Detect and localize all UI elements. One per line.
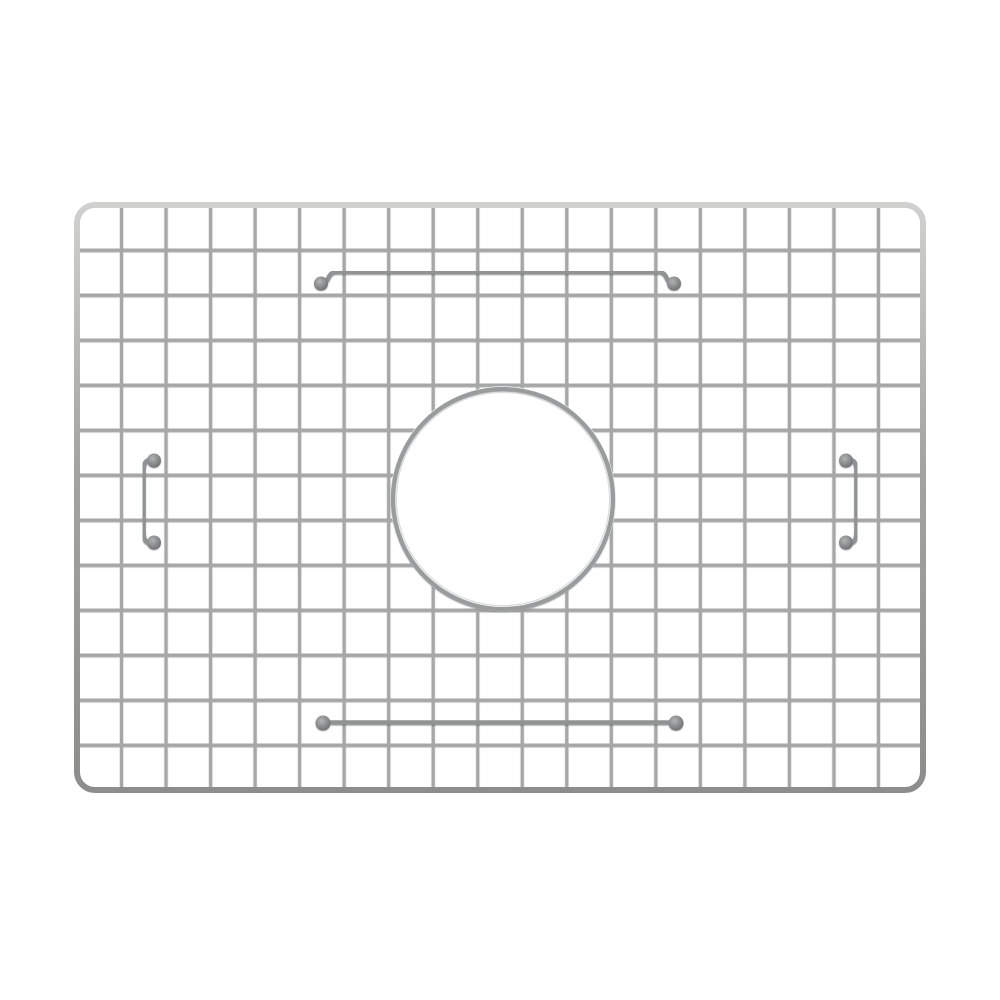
left-handle-top-foot bbox=[147, 454, 161, 468]
sink-grid-photo bbox=[0, 0, 1000, 1000]
left-handle-bottom-foot bbox=[147, 536, 161, 550]
right-handle-top-foot bbox=[839, 454, 853, 468]
product-photo-canvas bbox=[0, 0, 1000, 1000]
bottom-bar-left-foot bbox=[316, 716, 331, 731]
top-bar-right-foot bbox=[667, 277, 681, 291]
bottom-bar-right-foot bbox=[669, 716, 684, 731]
top-bar-left-foot bbox=[314, 277, 328, 291]
right-handle-bottom-foot bbox=[839, 536, 853, 550]
